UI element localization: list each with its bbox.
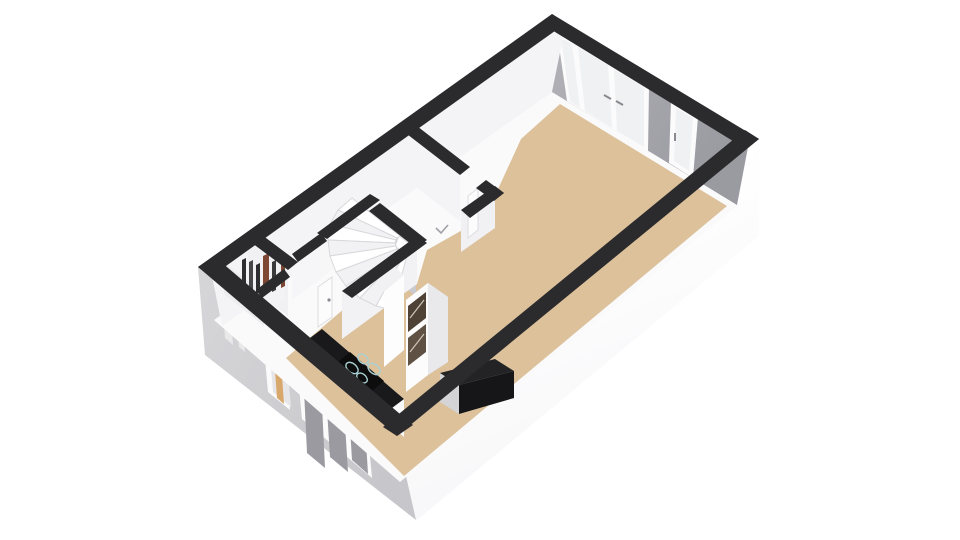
kitchen-tall-unit-side bbox=[428, 283, 448, 375]
floorplan-page bbox=[0, 0, 960, 540]
floorplan-3d-render bbox=[0, 0, 960, 540]
door-handle bbox=[327, 298, 330, 301]
